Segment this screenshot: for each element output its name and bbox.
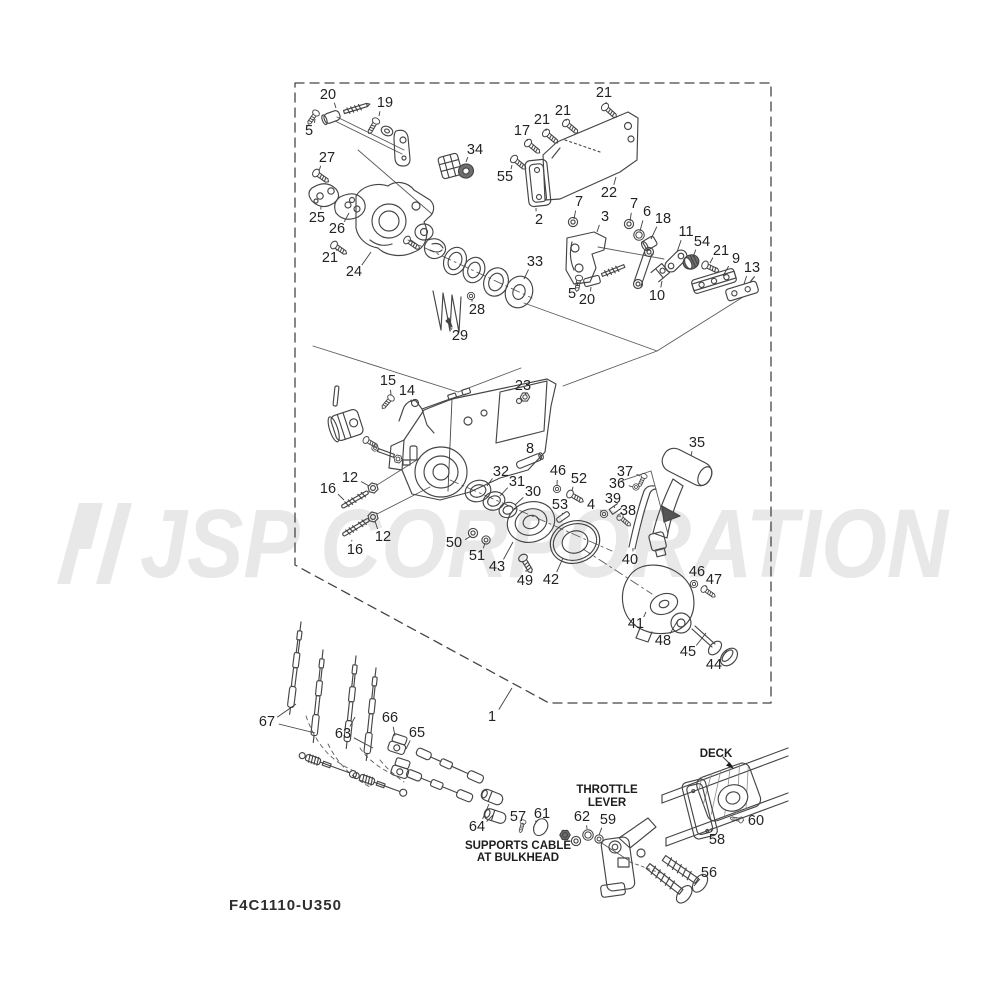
part-21-screw [561,118,580,136]
part-66-fitting [387,733,409,755]
part-label-7: 7 [575,194,583,210]
leader-line-63 [354,738,373,748]
ring-washer [583,830,593,840]
part-label-53: 53 [552,497,568,513]
supports-cable-label-line1: SUPPORTS CABLE [465,840,571,852]
diagram-canvas: JSP CORPORATION [0,0,1000,1000]
part-label-12: 12 [342,470,358,486]
part-label-23: 23 [515,378,531,394]
leader-line-6 [640,220,643,231]
part-label-4: 4 [587,497,595,513]
part-7-washer [568,217,577,226]
part-label-35: 35 [689,435,705,451]
part-label-59: 59 [600,812,616,828]
throttle-lever-assembly [600,818,656,898]
part-label-21: 21 [555,103,571,119]
part-label-54: 54 [694,234,710,250]
part-label-16: 16 [320,481,336,497]
part-label-50: 50 [446,535,462,551]
part-10-clevis [651,264,669,282]
part-63-cables [343,656,379,761]
part-label-56: 56 [701,865,717,881]
bracket-arm [394,130,410,166]
part-6-ring [634,230,644,240]
leader-line-10 [661,281,662,288]
part-label-63: 63 [335,726,351,742]
part-label-14: 14 [399,383,415,399]
part-label-33: 33 [527,254,543,270]
part-label-11: 11 [678,224,693,240]
part-label-44: 44 [706,657,722,673]
watermark-logo-icon [57,503,103,584]
part-19-screw [365,117,394,138]
part-label-31: 31 [509,474,525,490]
part-label-49: 49 [517,573,533,589]
part-label-67: 67 [259,714,275,730]
part-label-51: 51 [469,548,485,564]
part-label-39: 39 [605,491,621,507]
part-label-58: 58 [709,832,725,848]
leader-line-35 [691,451,692,456]
part-label-17: 17 [514,123,530,139]
supports-cable-label-line2: AT BULKHEAD [477,852,559,864]
part-label-21: 21 [534,112,550,128]
part-label-1: 1 [488,709,496,725]
part-label-62: 62 [574,809,590,825]
leader-line-22 [614,177,616,185]
leader-line-36 [629,486,633,487]
leader-line-1 [499,688,512,710]
part-label-28: 28 [469,302,485,318]
part-27-screw [311,168,331,185]
part-label-45: 45 [680,644,696,660]
part-label-32: 32 [493,464,509,480]
part-label-15: 15 [380,373,396,389]
cable-end-cylinder [326,386,410,465]
part-label-7: 7 [630,196,638,212]
part-label-6: 6 [643,204,651,220]
part-label-57: 57 [510,809,526,825]
part-label-22: 22 [601,185,617,201]
part-label-41: 41 [628,616,644,632]
part-label-47: 47 [706,572,722,588]
part-22-plate [543,112,638,200]
part-label-27: 27 [319,150,335,166]
part-label-12: 12 [375,529,391,545]
part-label-8: 8 [526,441,534,457]
part-17-screw [523,138,542,156]
part-label-66: 66 [382,710,398,726]
throttle-lever-label-line1: THROTTLE [576,784,638,796]
part-label-29: 29 [452,328,468,344]
part-21-screw [541,128,560,146]
part-3-bracket [566,232,606,284]
part-24-housing [356,183,434,256]
throttle-lever-label-line2: LEVER [588,797,627,809]
part-64-fitting [480,788,505,806]
part-62-nut [560,831,570,840]
part-label-21: 21 [713,243,729,259]
part-label-20: 20 [320,87,336,103]
leader-line-24 [362,252,371,265]
leader-line-5 [577,282,578,286]
parts-diagram-page: JSP CORPORATION [0,0,1000,1000]
part-label-5: 5 [305,123,313,139]
deck-label: DECK [700,748,733,760]
leader-line-59 [599,828,602,835]
part-label-18: 18 [655,211,671,227]
part-label-21: 21 [322,250,338,266]
watermark-logo-bar-icon [96,503,132,584]
part-label-3: 3 [601,209,609,225]
clutch-washer-stack [424,239,512,300]
part-23-nut [520,393,529,401]
part-label-61: 61 [534,806,550,822]
part-label-40: 40 [622,552,638,568]
part-label-46: 46 [689,564,705,580]
part-65-fitting [390,757,412,779]
leader-line-12 [361,482,369,487]
leader-line-20 [334,103,336,108]
leader-line-3 [597,225,599,232]
leader-line-19 [379,111,380,116]
leader-line-53 [562,513,563,514]
leader-line-8 [529,457,530,458]
leader-line-67 [277,704,296,717]
part-21-screw [600,102,619,120]
part-29-spring [433,291,461,332]
part-label-38: 38 [620,503,636,519]
part-26-plate [335,194,365,219]
part-label-65: 65 [409,725,425,741]
leader-line-27 [319,166,321,171]
part-25-plate [309,184,339,207]
part-label-2: 2 [535,212,543,228]
part-label-36: 36 [609,476,625,492]
part-label-21: 21 [596,85,612,101]
part-label-52: 52 [571,471,587,487]
part-28-washer [467,292,474,299]
part-label-46: 46 [550,463,566,479]
part-67-cables [286,622,326,743]
leader-line-13 [744,276,747,284]
part-20-pin [583,263,625,287]
part-label-25: 25 [309,210,325,226]
dashed-boundary [295,83,771,703]
part-label-60: 60 [748,813,764,829]
part-label-5: 5 [568,286,576,302]
part-label-34: 34 [467,142,483,158]
part-label-13: 13 [744,260,760,276]
part-label-9: 9 [732,251,740,267]
leader-line-15 [391,390,392,395]
part-label-10: 10 [649,288,665,304]
part-label-24: 24 [346,264,362,280]
part-label-19: 19 [377,95,393,111]
leader-line-20 [591,287,592,291]
part-label-48: 48 [655,633,671,649]
part-label-64: 64 [469,819,485,835]
part-48-disc [671,613,691,633]
diagram-code: F4C1110-U350 [229,897,342,914]
part-label-20: 20 [579,292,595,308]
part-label-30: 30 [525,484,541,500]
part-label-42: 42 [543,572,559,588]
part-7-washer [624,219,633,228]
part-label-26: 26 [329,221,345,237]
cable-rods [406,747,485,803]
part-label-16: 16 [347,542,363,558]
washer [571,836,580,845]
part-45-screw [692,626,724,657]
part-label-43: 43 [489,559,505,575]
part-15-screw [379,394,395,411]
part-label-55: 55 [497,169,513,185]
leader-line-5 [314,119,315,123]
